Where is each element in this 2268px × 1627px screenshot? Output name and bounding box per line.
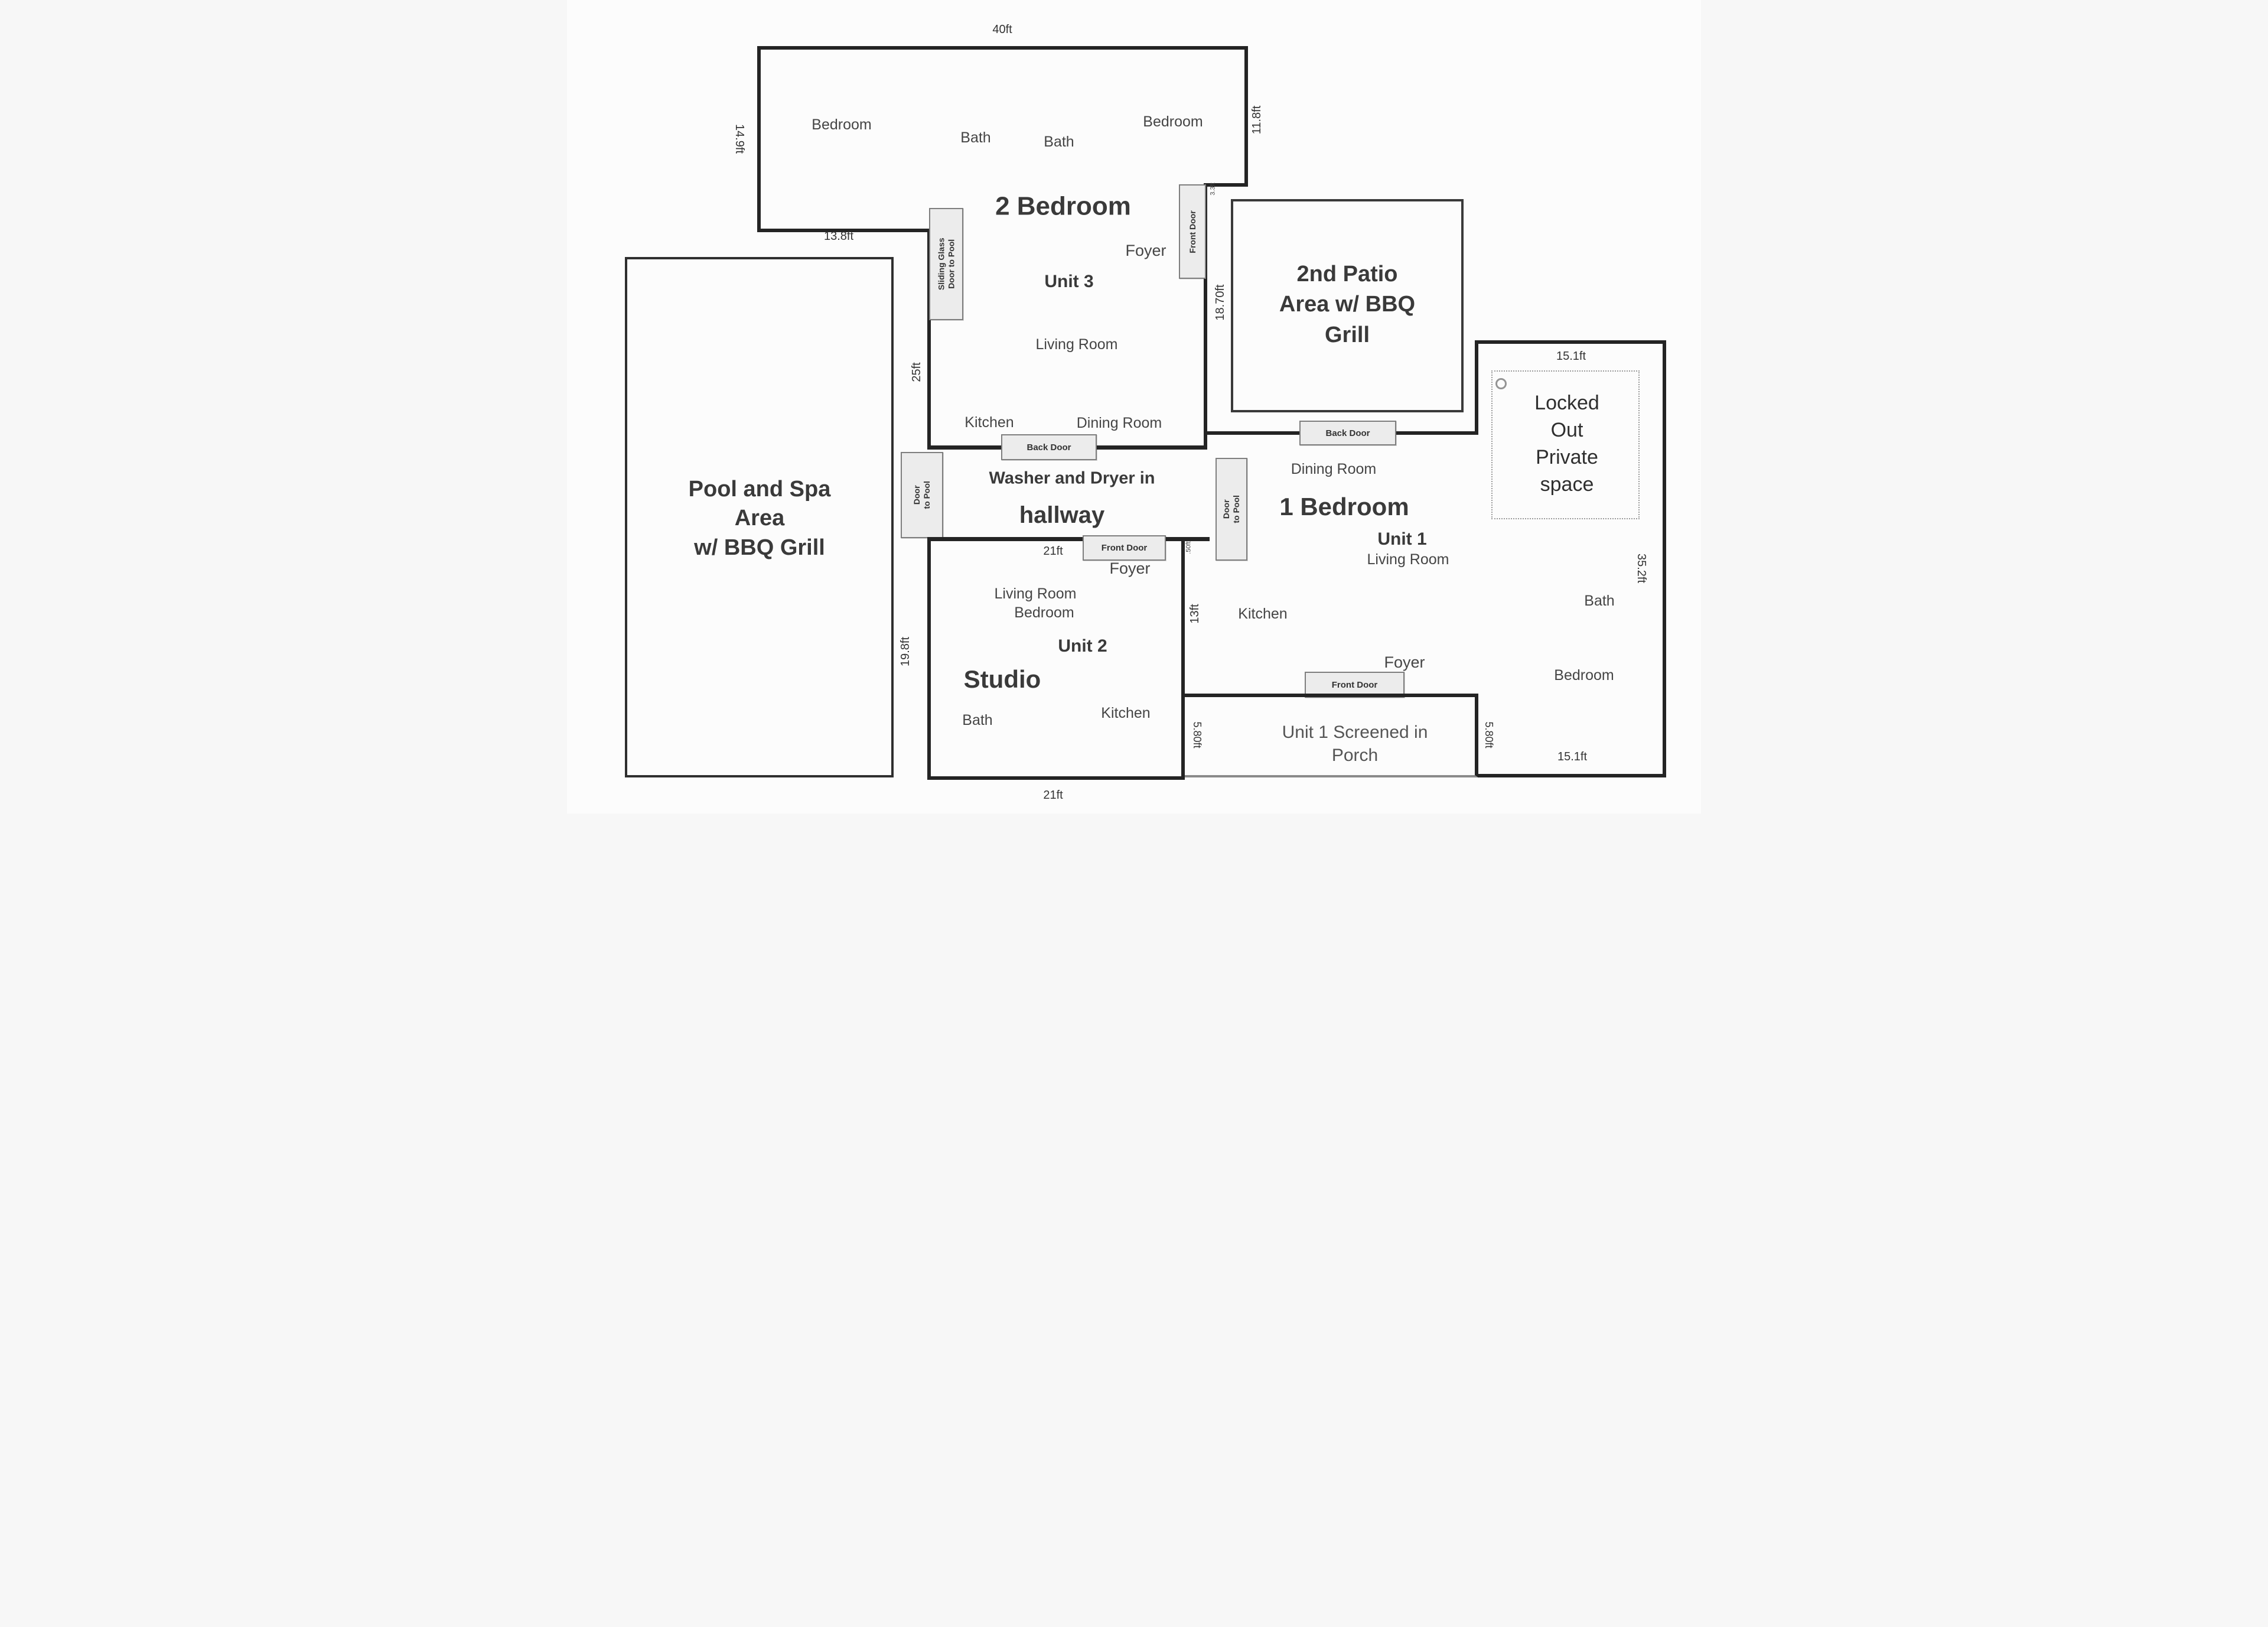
room-living: Living Room xyxy=(1036,336,1118,353)
room-living: Living Room xyxy=(995,585,1077,603)
unit1-door-to-pool: Door to Pool xyxy=(1216,458,1247,561)
room-kitchen: Kitchen xyxy=(964,414,1014,431)
room-bedroom: Bedroom xyxy=(1143,113,1203,131)
dim-unit2-bottom: 21ft xyxy=(1043,788,1063,802)
room-bath: Bath xyxy=(960,129,990,147)
room-bath: Bath xyxy=(962,711,992,729)
unit1-back-door: Back Door xyxy=(1299,421,1396,445)
dim-left: 14.9ft xyxy=(732,124,747,154)
wall-segment xyxy=(757,46,761,232)
hallway-back-door: Back Door xyxy=(1001,434,1097,460)
room-foyer: Foyer xyxy=(1125,241,1166,260)
unit2-front-door-label: Front Door xyxy=(1102,543,1147,553)
room-dining: Dining Room xyxy=(1077,414,1162,432)
unit2-type-label: Studio xyxy=(964,665,1041,694)
wall-segment xyxy=(1475,340,1478,435)
dim-locked-top: 15.1ft xyxy=(1556,349,1586,363)
sliding-glass-door-label: Sliding Glass Door to Pool xyxy=(936,238,956,291)
lock-icon xyxy=(1495,378,1507,389)
dim-porch-left: 5.80ft xyxy=(1190,721,1203,748)
dim-wall-jog: .50ft xyxy=(1185,541,1192,554)
dim-unit2-right: 13ft xyxy=(1188,604,1202,623)
room-bedroom: Bedroom xyxy=(1014,604,1074,621)
room-dining: Dining Room xyxy=(1291,460,1377,478)
hallway-door-to-pool: Door to Pool xyxy=(901,452,943,538)
room-foyer: Foyer xyxy=(1109,559,1150,578)
hallway-note-line1: Washer and Dryer in xyxy=(989,468,1155,489)
room-bedroom: Bedroom xyxy=(1554,666,1614,684)
room-foyer: Foyer xyxy=(1384,653,1425,672)
dim-bottom-left: 13.8ft xyxy=(824,229,853,243)
dim-right: 11.8ft xyxy=(1250,106,1264,135)
patio-area-label: 2nd Patio Area w/ BBQ Grill xyxy=(1279,259,1415,350)
hallway-door-to-pool-label: Door to Pool xyxy=(912,481,932,509)
unit3-label: Unit 3 xyxy=(1044,271,1093,292)
unit1-type-label: 1 Bedroom xyxy=(1279,492,1409,522)
unit1-front-door-label: Front Door xyxy=(1332,680,1377,690)
unit2-front-door: Front Door xyxy=(1083,535,1166,561)
dim-unit2-left: 19.8ft xyxy=(898,637,913,666)
room-kitchen: Kitchen xyxy=(1238,605,1287,623)
dim-mid-left: 25ft xyxy=(910,362,924,382)
unit1-door-to-pool-label: Door to Pool xyxy=(1221,495,1241,523)
room-bath: Bath xyxy=(1584,592,1614,610)
room-living: Living Room xyxy=(1367,551,1449,568)
unit2-label: Unit 2 xyxy=(1058,636,1107,657)
hallway-back-door-label: Back Door xyxy=(1027,442,1071,453)
unit1-back-door-label: Back Door xyxy=(1325,428,1370,438)
unit3-front-door-label: Front Door xyxy=(1188,210,1198,253)
unit3-type-label: 2 Bedroom xyxy=(995,191,1131,223)
hallway-note-line2: hallway xyxy=(1019,501,1105,529)
dim-entry-side: 18.70ft xyxy=(1213,284,1227,320)
dim-top: 40ft xyxy=(992,22,1012,37)
wall-segment xyxy=(757,46,1247,50)
dim-entry-top: 3.3ft xyxy=(1209,183,1217,195)
sliding-glass-door: Sliding Glass Door to Pool xyxy=(929,208,963,320)
wall-segment xyxy=(1244,46,1248,186)
pool-area-label: Pool and Spa Area w/ BBQ Grill xyxy=(689,475,831,562)
porch-label: Unit 1 Screened in Porch xyxy=(1282,721,1428,767)
locked-private-space-label: Locked Out Private space xyxy=(1534,390,1599,499)
dim-locked-right: 35.2ft xyxy=(1634,554,1648,583)
room-bath: Bath xyxy=(1044,133,1074,151)
room-bedroom: Bedroom xyxy=(812,116,871,134)
room-kitchen: Kitchen xyxy=(1101,704,1150,722)
floor-plan: Pool and Spa Area w/ BBQ Grill 2nd Patio… xyxy=(567,0,1701,813)
unit3-front-door: Front Door xyxy=(1179,184,1206,279)
unit1-label: Unit 1 xyxy=(1377,529,1426,550)
